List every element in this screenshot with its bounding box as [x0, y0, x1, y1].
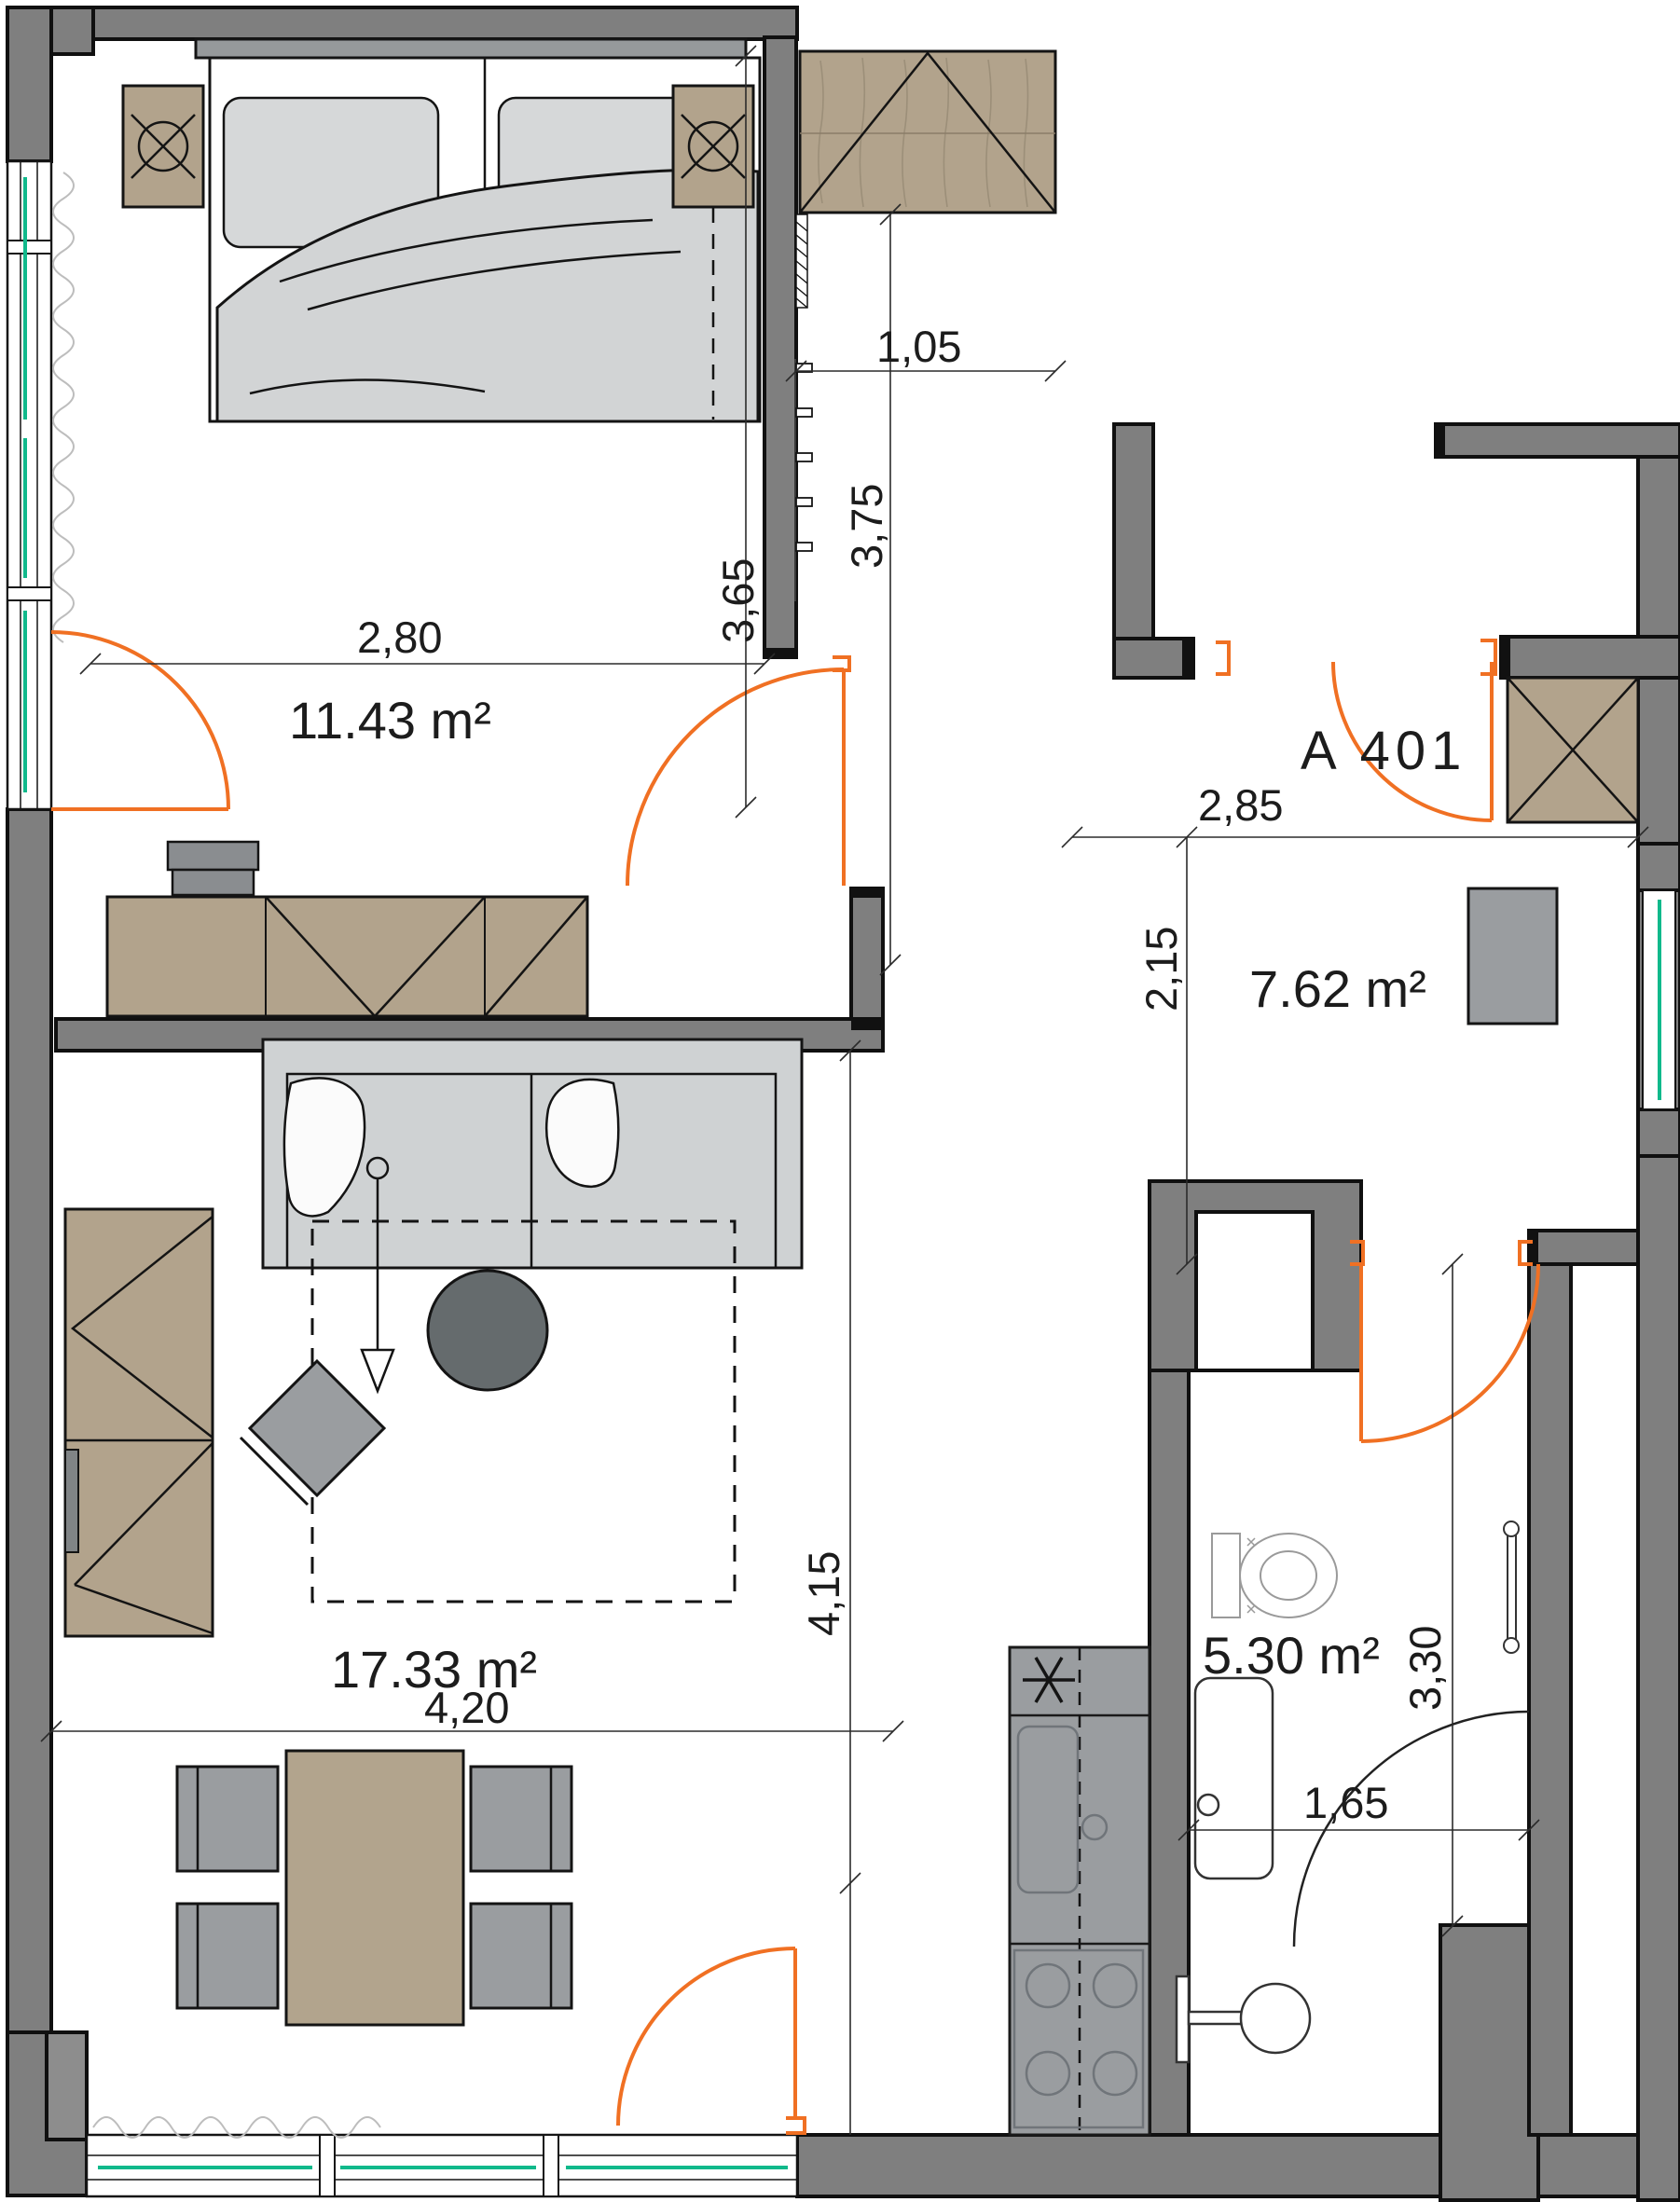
wall-hall-stub: [851, 888, 883, 1028]
toilet: [1212, 1534, 1337, 1617]
faucet-icon: [1198, 1795, 1219, 1815]
dining-chair: [177, 1904, 278, 2008]
dim-bedroom-width: 2,80: [357, 612, 442, 662]
bedroom-door: [627, 657, 849, 886]
coat-hooks: [796, 364, 812, 551]
entry-storage: [1468, 678, 1638, 1024]
wall-left-lower: [7, 809, 51, 2032]
bedroom-wall-details: [795, 214, 812, 601]
balcony-door-bedroom: [51, 632, 228, 809]
wall-entry-L-vertical: [1114, 424, 1153, 640]
dim-hall-depth: 3,75: [842, 484, 891, 569]
dim-hall-niche-width: 1,05: [876, 322, 961, 371]
wall-entry-top-band: [1436, 424, 1680, 457]
unit-label: A 401: [1301, 721, 1467, 781]
wall-right-pier-top: [1638, 844, 1680, 890]
wall-right: [1638, 424, 1680, 2200]
shower-door-arc: [1294, 1712, 1529, 1947]
wall-bath-top-right: [1529, 1231, 1638, 1264]
wall-bedroom-hall: [764, 37, 796, 657]
tv-unit-base: [172, 870, 254, 895]
wall-bottom-right-column: [1440, 1925, 1538, 2200]
dining-set: [177, 1751, 571, 2025]
tv-unit: [168, 842, 258, 870]
living-furniture: [65, 1039, 802, 2025]
window-bottom-living: [87, 2117, 797, 2196]
dim-entry-width: 2,85: [1198, 780, 1283, 830]
bedroom-furniture: [107, 39, 760, 1016]
dining-chair: [177, 1767, 278, 1871]
shower-head-icon: [1241, 1984, 1310, 2053]
wall-bottom-right: [797, 2135, 1680, 2196]
sofa: [263, 1039, 802, 1268]
towel-rail: [1504, 1521, 1519, 1653]
bath-shaft-inner: [1196, 1212, 1313, 1370]
wall-right-pier-bottom: [1638, 1109, 1680, 1156]
entry-cabinet: [1468, 888, 1557, 1024]
wall-entry-L-foot: [1114, 639, 1193, 678]
coffee-table: [428, 1271, 547, 1390]
bedroom-area-label: 11.43 m²: [289, 691, 491, 750]
curtain-wave: [53, 172, 74, 642]
bathroom-area-label: 5.30 m²: [1203, 1626, 1380, 1685]
wall-bottom-left-inner: [47, 2032, 87, 2140]
rug: [312, 1221, 735, 1602]
shower: [1177, 1976, 1310, 2062]
dim-living-width: 4,20: [424, 1683, 509, 1732]
dining-chair: [471, 1767, 571, 1871]
nightstand-right: [673, 86, 753, 207]
armchair: [241, 1361, 384, 1505]
wall-entry-band: [1501, 637, 1680, 678]
wall-top-left-corner: [7, 7, 51, 161]
bed-headboard: [196, 39, 746, 58]
dining-chair: [471, 1904, 571, 2008]
bedroom-wardrobe: [107, 842, 587, 1016]
dim-living-depth: 4,15: [799, 1551, 848, 1636]
dim-hall-height: 2,15: [1136, 927, 1186, 1012]
dim-bathroom-depth: 3,30: [1400, 1626, 1450, 1711]
wall-top-left-pier: [51, 7, 93, 54]
wall-bath-right: [1529, 1231, 1571, 2135]
kitchen: [1010, 1647, 1150, 2135]
dim-bathroom-width: 1,65: [1303, 1778, 1388, 1827]
washbasin: [1195, 1678, 1273, 1879]
window-right-hall: [1643, 890, 1675, 1109]
hall-area-label: 7.62 m²: [1249, 959, 1426, 1018]
nightstand-left: [123, 86, 203, 207]
wall-top: [51, 7, 797, 39]
hall-wardrobe: [800, 51, 1055, 213]
window-left-bedroom: [7, 161, 74, 809]
dining-table: [286, 1751, 463, 2025]
floor-plan-page: 11.43 m² 17.33 m² 7.62 m² 5.30 m² A 401 …: [0, 0, 1680, 2202]
balcony-door-living: [618, 1948, 805, 2133]
floor-plan-drawing: 11.43 m² 17.33 m² 7.62 m² 5.30 m² A 401 …: [0, 0, 1680, 2202]
dim-bedroom-depth: 3,65: [713, 558, 763, 643]
sideboard: [65, 1209, 213, 1636]
